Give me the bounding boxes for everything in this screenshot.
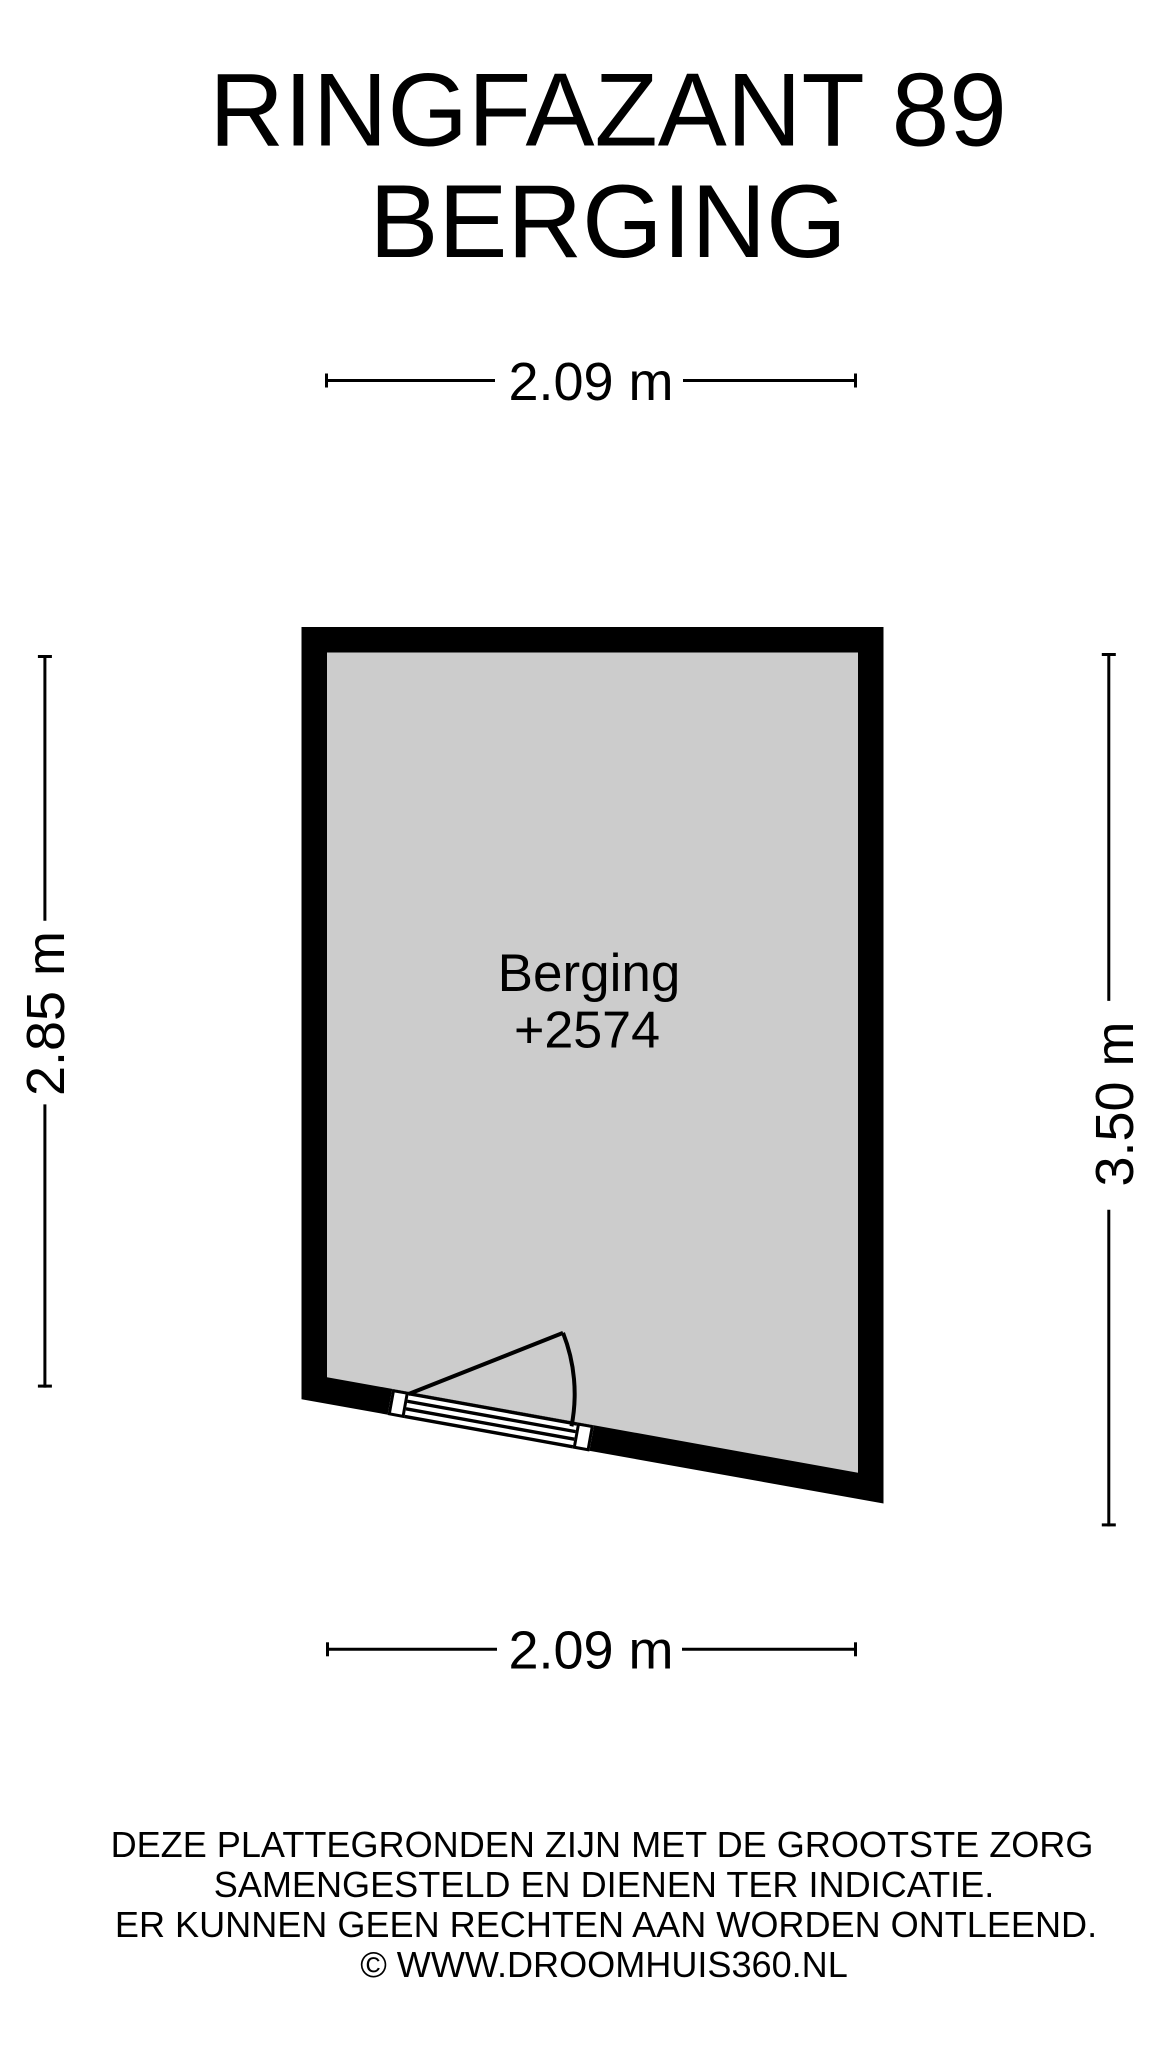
svg-text:2.85 m: 2.85 m: [16, 931, 76, 1096]
svg-text:SAMENGESTELD EN DIENEN TER IND: SAMENGESTELD EN DIENEN TER INDICATIE.: [214, 1864, 995, 1905]
svg-text:Berging: Berging: [498, 944, 681, 1003]
svg-text:2.09 m: 2.09 m: [508, 352, 673, 412]
svg-text:© WWW.DROOMHUIS360.NL: © WWW.DROOMHUIS360.NL: [360, 1944, 848, 1985]
svg-text:2.09 m: 2.09 m: [508, 1621, 673, 1681]
svg-text:ER KUNNEN GEEN RECHTEN AAN WOR: ER KUNNEN GEEN RECHTEN AAN WORDEN ONTLEE…: [115, 1904, 1097, 1945]
svg-text:BERGING: BERGING: [369, 163, 846, 279]
svg-text:3.50 m: 3.50 m: [1085, 1021, 1145, 1186]
svg-text:DEZE PLATTEGRONDEN ZIJN MET DE: DEZE PLATTEGRONDEN ZIJN MET DE GROOTSTE …: [111, 1824, 1094, 1865]
svg-text:+2574: +2574: [514, 1002, 660, 1060]
svg-text:RINGFAZANT 89: RINGFAZANT 89: [209, 52, 1007, 168]
